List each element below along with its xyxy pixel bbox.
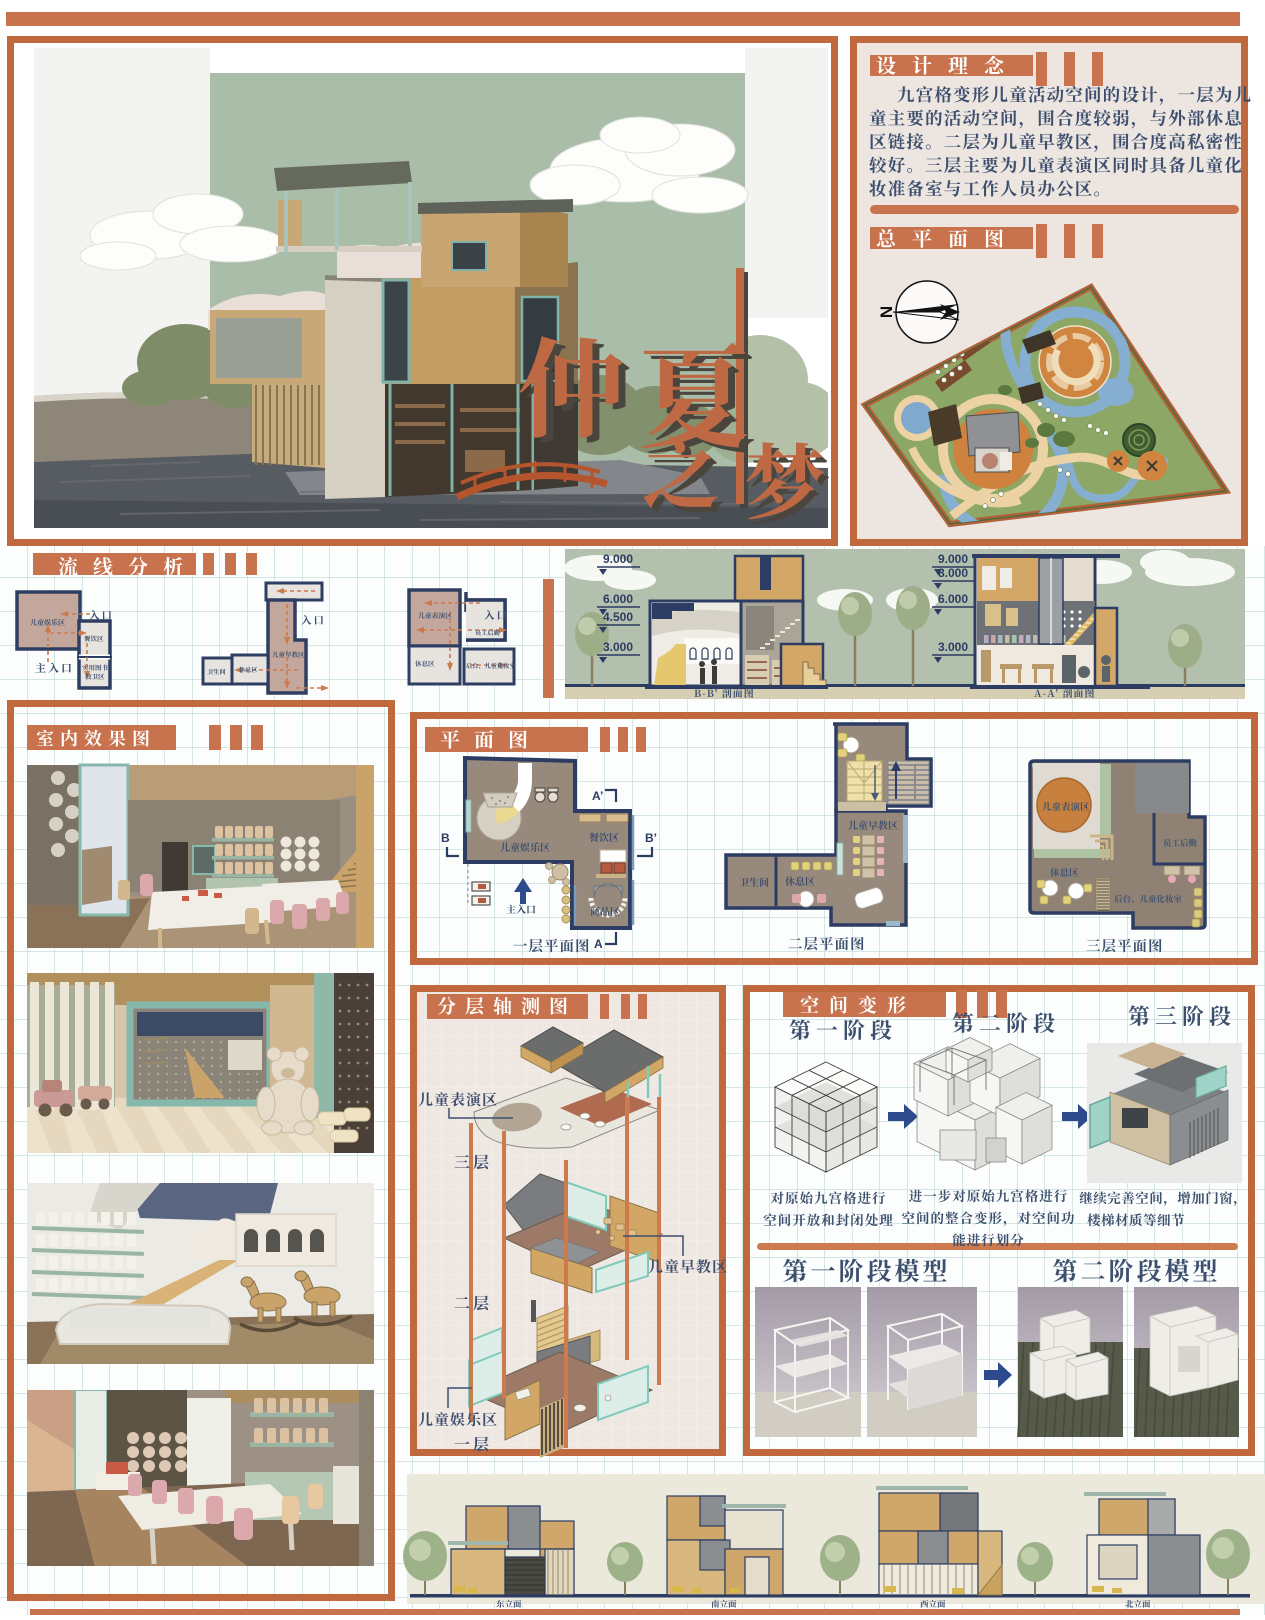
svg-text:A’: A’	[592, 789, 603, 803]
svg-text:9.000: 9.000	[938, 552, 968, 566]
svg-text:B’: B’	[645, 831, 657, 845]
svg-text:N: N	[877, 306, 896, 318]
svg-text:3.000: 3.000	[938, 640, 968, 654]
svg-text:3.000: 3.000	[603, 640, 633, 654]
svg-text:9.000: 9.000	[603, 552, 633, 566]
svg-text:B: B	[441, 831, 450, 845]
svg-text:4.500: 4.500	[603, 610, 633, 624]
svg-text:6.000: 6.000	[938, 592, 968, 606]
svg-text:6.000: 6.000	[603, 592, 633, 606]
svg-text:A: A	[594, 937, 603, 951]
svg-text:8.000: 8.000	[938, 566, 968, 580]
